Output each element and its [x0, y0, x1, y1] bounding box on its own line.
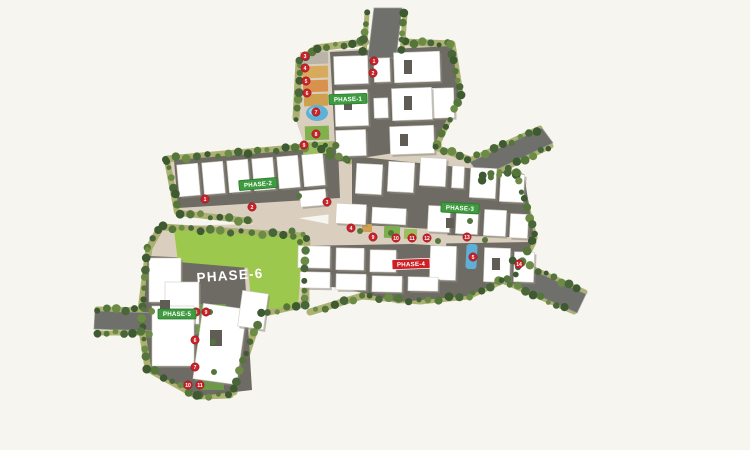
tree-icon [244, 149, 253, 158]
tree-icon [553, 302, 560, 309]
tree-icon [188, 225, 194, 231]
tree-icon [169, 378, 175, 384]
tree-icon [244, 216, 252, 224]
marker-number[interactable]: 2 [372, 71, 375, 77]
tree-icon [532, 231, 538, 237]
tree-icon [303, 235, 310, 242]
tree-icon [535, 268, 542, 275]
building [299, 189, 326, 207]
tree-icon [208, 215, 213, 220]
marker-number[interactable]: 1 [373, 59, 376, 65]
tree-icon [313, 45, 321, 53]
tree-icon [215, 153, 221, 159]
map-marker[interactable]: 3 [301, 52, 309, 60]
map-marker[interactable]: 13 [463, 233, 471, 241]
tree-icon [533, 127, 542, 136]
phase-label-text[interactable]: PHASE-1 [334, 96, 363, 104]
tree-icon [216, 392, 221, 397]
tree-icon [163, 158, 170, 165]
building [390, 125, 435, 155]
marker-number[interactable]: 9 [372, 235, 375, 241]
tree-icon [537, 293, 544, 300]
tree-icon [529, 291, 538, 300]
building [431, 88, 454, 119]
tree-icon [142, 337, 147, 342]
tree-icon [538, 147, 544, 153]
road-north-entry [368, 8, 402, 58]
tree-icon [186, 210, 194, 218]
building-core [404, 60, 412, 74]
tree-icon [192, 391, 201, 400]
tree-icon [335, 153, 343, 161]
building [374, 98, 389, 118]
tree-icon [525, 129, 533, 137]
tree-icon [182, 154, 191, 163]
map-marker[interactable]: 1 [370, 57, 378, 65]
tree-icon [384, 293, 393, 302]
tree-icon [141, 273, 149, 281]
tree-icon [197, 210, 204, 217]
tree-icon [410, 40, 419, 49]
building [336, 129, 367, 156]
tree-icon [486, 283, 495, 292]
map-marker[interactable]: 8 [312, 130, 320, 138]
tree-icon [466, 158, 471, 163]
tree-icon [438, 130, 446, 138]
tree-icon [521, 195, 528, 202]
map-marker[interactable]: 7 [191, 363, 199, 371]
tree-icon [206, 225, 215, 234]
marker-number[interactable]: 14 [516, 262, 522, 268]
tree-icon [394, 294, 403, 303]
tree-icon [94, 308, 100, 314]
tree-icon [239, 357, 246, 364]
tree-icon [523, 247, 532, 256]
building [336, 274, 366, 291]
tree-icon [455, 293, 463, 301]
building [334, 55, 369, 84]
tree-icon [455, 78, 460, 83]
map-marker[interactable]: 5 [469, 253, 477, 261]
building [451, 166, 464, 189]
marker-number[interactable]: 1 [204, 197, 207, 203]
tree-icon [399, 37, 405, 43]
tree-icon [141, 266, 150, 275]
tree-icon [521, 287, 530, 296]
marker-number[interactable]: 8 [315, 132, 318, 138]
tree-icon [296, 193, 302, 199]
tree-icon [399, 30, 405, 36]
tree-icon [154, 226, 162, 234]
tree-icon [546, 146, 552, 152]
marker-number[interactable]: 9 [205, 310, 208, 316]
tree-icon [450, 56, 458, 64]
tree-icon [264, 147, 269, 152]
marker-number[interactable]: 5 [472, 255, 475, 261]
tree-icon [244, 351, 249, 356]
tree-icon [145, 247, 150, 252]
tree-icon [173, 201, 181, 209]
tree-icon [279, 231, 287, 239]
marker-number[interactable]: 4 [304, 66, 307, 72]
tree-icon [193, 152, 201, 160]
tree-icon [148, 308, 155, 315]
tree-icon [103, 305, 111, 313]
tree-icon [253, 321, 262, 330]
tree-icon [343, 156, 350, 163]
tree-icon [507, 282, 513, 288]
tree-icon [364, 9, 370, 15]
tree-icon [121, 307, 129, 315]
tree-icon [515, 177, 522, 184]
tree-icon [331, 301, 339, 309]
tree-icon [275, 309, 280, 314]
tree-icon [326, 147, 334, 155]
map-marker[interactable]: 12 [423, 234, 431, 242]
tree-icon [172, 152, 180, 160]
tree-icon [171, 190, 180, 199]
tree-icon [481, 150, 489, 158]
tree-icon [142, 352, 150, 360]
tree-icon [210, 339, 216, 345]
tree-icon [551, 273, 558, 280]
tree-icon [294, 117, 299, 122]
tree-icon [359, 35, 368, 44]
tree-icon [340, 296, 349, 305]
building [372, 276, 402, 293]
tree-icon [528, 237, 536, 245]
marker-number[interactable]: 13 [464, 235, 470, 241]
tree-icon [445, 292, 454, 301]
tree-icon [523, 203, 531, 211]
map-marker[interactable]: 11 [196, 381, 204, 389]
marker-number[interactable]: 7 [194, 365, 197, 371]
tree-icon [375, 295, 383, 303]
building [335, 203, 366, 225]
tree-icon [94, 330, 102, 338]
tree-icon [367, 293, 373, 299]
tree-icon [258, 231, 266, 239]
building [202, 161, 226, 195]
tree-icon [301, 301, 310, 310]
marker-number[interactable]: 11 [197, 383, 203, 389]
marker-number[interactable]: 6 [194, 338, 197, 344]
tree-icon [499, 140, 507, 148]
tree-icon [120, 330, 128, 338]
tree-icon [179, 225, 185, 231]
tree-icon [197, 227, 205, 235]
tree-icon [131, 305, 138, 312]
tree-icon [168, 174, 175, 181]
tree-icon [142, 365, 151, 374]
tree-icon [282, 143, 290, 151]
map-marker[interactable]: 9 [300, 141, 308, 149]
tree-icon [513, 272, 519, 278]
tree-icon [363, 21, 369, 27]
map-marker[interactable]: 2 [369, 69, 377, 77]
tree-icon [505, 165, 512, 172]
tree-icon [425, 297, 432, 304]
tree-icon [341, 43, 348, 50]
tree-icon [112, 304, 121, 313]
map-marker[interactable]: 11 [408, 234, 416, 242]
tree-icon [141, 285, 147, 291]
phase-label-phase-5[interactable]: PHASE-5 [158, 309, 196, 319]
tree-icon [405, 298, 412, 305]
tree-icon [440, 147, 448, 155]
map-marker[interactable]: 4 [347, 224, 355, 232]
tree-icon [137, 314, 146, 323]
tree-icon [150, 235, 156, 241]
tree-icon [141, 307, 146, 312]
map-marker[interactable]: 2 [248, 203, 256, 211]
tree-icon [140, 296, 146, 302]
tree-icon [151, 366, 160, 375]
tree-icon [225, 391, 232, 398]
tree-icon [167, 165, 172, 170]
tree-icon [128, 329, 137, 338]
map-marker[interactable]: 6 [303, 89, 311, 97]
tree-icon [521, 156, 530, 165]
tree-icon [301, 278, 307, 284]
tree-icon [487, 170, 494, 177]
building-core [492, 258, 500, 270]
tree-icon [234, 148, 243, 157]
tree-icon [427, 39, 434, 46]
tree-icon [176, 210, 185, 219]
tree-icon [434, 296, 442, 304]
map-marker[interactable]: 9 [369, 233, 377, 241]
tree-icon [456, 83, 463, 90]
marker-number[interactable]: 11 [409, 236, 415, 242]
map-marker[interactable]: 5 [302, 77, 310, 85]
tree-icon [234, 217, 243, 226]
marker-number[interactable]: 4 [350, 226, 353, 232]
tree-icon [301, 257, 310, 266]
phase-label-phase-1[interactable]: PHASE-1 [329, 93, 367, 104]
tree-icon [317, 145, 325, 153]
building [302, 153, 326, 187]
tree-icon [333, 42, 338, 47]
marker-number[interactable]: 7 [315, 110, 318, 116]
map-marker[interactable]: 10 [184, 381, 192, 389]
tree-icon [544, 271, 549, 276]
phase-label-phase-4[interactable]: PHASE-4 [392, 258, 430, 269]
tree-icon [160, 374, 168, 382]
tree-icon [447, 117, 453, 123]
tree-icon [565, 280, 574, 289]
tree-icon [301, 246, 309, 254]
tree-icon [269, 228, 278, 237]
tree-icon [512, 168, 521, 177]
building [483, 209, 506, 236]
tree-icon [250, 328, 258, 336]
tree-icon [435, 238, 441, 244]
map-marker[interactable]: 9 [202, 308, 210, 316]
tree-icon [359, 293, 365, 299]
tree-icon [104, 331, 110, 337]
tree-icon [257, 309, 265, 317]
tree-icon [216, 226, 225, 235]
tree-icon [361, 28, 369, 36]
tree-icon [273, 148, 279, 154]
tree-icon [292, 302, 301, 311]
tree-icon [211, 369, 217, 375]
tree-icon [448, 147, 457, 156]
tree-icon [113, 329, 119, 335]
building [355, 163, 383, 194]
marker-number[interactable]: 12 [424, 236, 430, 242]
tree-icon [443, 124, 449, 130]
marker-number[interactable]: 10 [393, 236, 399, 242]
tree-icon [146, 331, 153, 338]
marker-number[interactable]: 6 [306, 91, 309, 97]
tree-icon [557, 279, 565, 287]
marker-number[interactable]: 3 [326, 200, 329, 206]
tree-icon [482, 237, 488, 243]
tree-icon [137, 327, 146, 336]
phase-label-text[interactable]: PHASE-5 [163, 311, 192, 318]
tree-icon [312, 141, 319, 148]
tree-icon [216, 214, 223, 221]
building [393, 51, 440, 83]
tree-icon [473, 151, 480, 158]
tree-icon [546, 300, 551, 305]
tree-icon [323, 44, 330, 51]
building [408, 277, 438, 292]
building-core [404, 96, 412, 110]
tree-icon [526, 261, 534, 269]
tree-icon [291, 143, 300, 152]
tree-icon [357, 228, 363, 234]
tree-icon [349, 297, 357, 305]
tree-icon [399, 9, 408, 18]
marker-number[interactable]: 5 [305, 79, 308, 85]
tree-icon [560, 303, 568, 311]
masterplan-canvas: 123456789123491011121351489671011PHASE-1… [0, 0, 750, 450]
tree-icon [519, 190, 524, 195]
tree-icon [177, 382, 183, 388]
building [277, 155, 301, 189]
tree-icon [235, 366, 244, 375]
map-marker[interactable]: 14 [515, 260, 523, 268]
map-marker[interactable]: 7 [312, 108, 320, 116]
building [177, 163, 201, 197]
tree-icon [456, 152, 464, 160]
tree-icon [230, 385, 238, 393]
tree-icon [529, 152, 537, 160]
phase-label-text[interactable]: PHASE-4 [397, 261, 426, 269]
tree-icon [205, 394, 212, 401]
tree-icon [295, 88, 304, 97]
map-marker[interactable]: 3 [323, 198, 331, 206]
tree-icon [169, 225, 177, 233]
tree-icon [528, 220, 536, 228]
tree-icon [499, 277, 505, 283]
tree-icon [358, 47, 367, 56]
tree-icon [418, 37, 426, 45]
map-marker[interactable]: 6 [191, 336, 199, 344]
building [419, 157, 446, 186]
tree-icon [416, 297, 421, 302]
tree-icon [204, 151, 210, 157]
tree-icon [518, 134, 524, 140]
tree-icon [297, 239, 303, 245]
tree-icon [457, 91, 466, 100]
building [336, 248, 364, 270]
tree-icon [573, 284, 581, 292]
tree-icon [467, 218, 473, 224]
tree-icon [294, 105, 301, 112]
building [372, 207, 407, 225]
tree-icon [450, 105, 458, 113]
tree-icon [348, 40, 356, 48]
tree-icon [398, 46, 406, 54]
map-marker[interactable]: 4 [301, 64, 309, 72]
tree-icon [478, 287, 485, 294]
tree-icon [452, 68, 458, 74]
tree-icon [289, 228, 296, 235]
tree-icon [313, 307, 318, 312]
site-plan-map: 123456789123491011121351489671011PHASE-1… [0, 0, 750, 450]
building [387, 161, 415, 192]
tree-icon [141, 346, 148, 353]
marker-number[interactable]: 3 [304, 54, 307, 60]
map-marker[interactable]: 1 [201, 195, 209, 203]
phase-label-phase-3[interactable]: PHASE-3 [441, 202, 479, 214]
building-core [400, 134, 408, 146]
marker-number[interactable]: 9 [303, 143, 306, 149]
tree-icon [513, 158, 521, 166]
tree-icon [254, 147, 261, 154]
map-marker[interactable]: 10 [392, 234, 400, 242]
tree-icon [247, 338, 254, 345]
tree-icon [514, 282, 522, 290]
tree-icon [225, 213, 233, 221]
tree-icon [239, 228, 244, 233]
tree-icon [466, 294, 473, 301]
building-core [446, 218, 454, 228]
marker-number[interactable]: 10 [185, 383, 191, 389]
tree-icon [225, 150, 233, 158]
tree-icon [490, 144, 499, 153]
tree-icon [227, 229, 234, 236]
tree-icon [446, 40, 454, 48]
tree-icon [497, 169, 502, 174]
phase-label-text[interactable]: PHASE-3 [446, 204, 475, 212]
building [429, 246, 456, 281]
tree-icon [302, 288, 308, 294]
tree-icon [283, 303, 290, 310]
tree-icon [322, 306, 329, 313]
marker-number[interactable]: 2 [251, 205, 254, 211]
tree-icon [332, 142, 339, 149]
tree-icon [399, 19, 407, 27]
tree-icon [478, 176, 486, 184]
tree-icon [301, 265, 309, 273]
tree-icon [509, 140, 515, 146]
tree-icon [437, 42, 442, 47]
tree-icon [433, 144, 439, 150]
tree-icon [142, 254, 151, 263]
tree-icon [249, 229, 256, 236]
tree-icon [185, 389, 193, 397]
